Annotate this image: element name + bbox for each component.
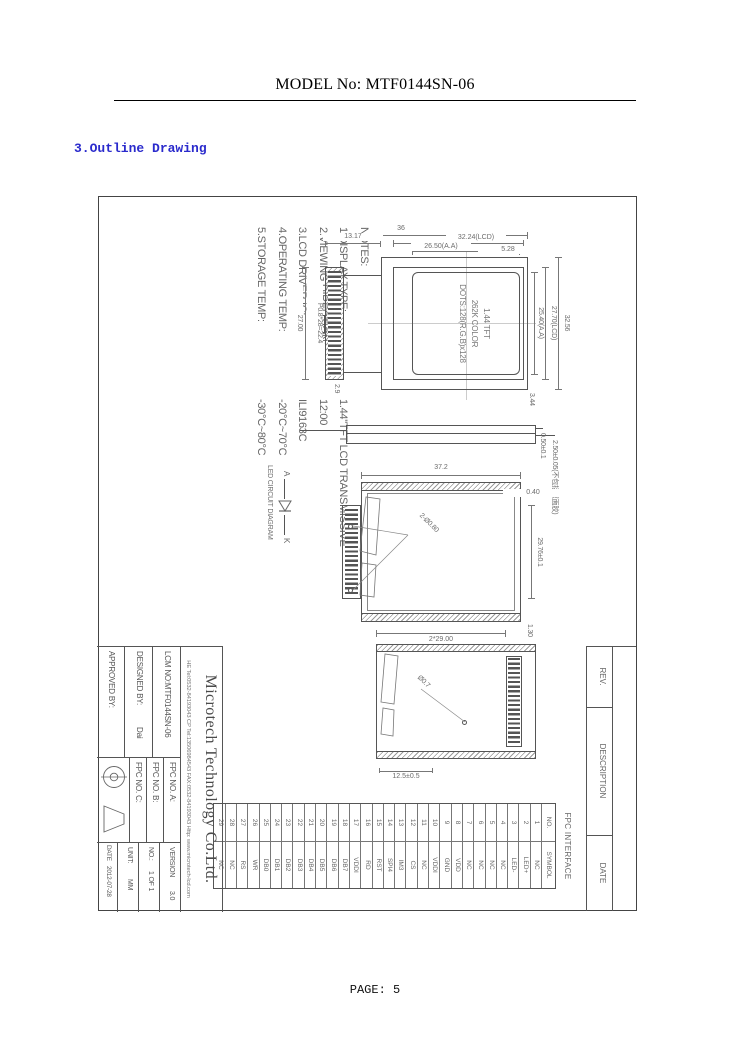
fpc-table-cell: 2: [519, 804, 529, 842]
unit-label: UNIT:: [126, 847, 133, 864]
fpc-table-cell: DB2: [282, 842, 292, 888]
fpc-table-row: 11NC: [418, 804, 429, 888]
fpc-table-cell: SPI4: [384, 842, 394, 888]
fpc-table-cell: IM3: [395, 842, 405, 888]
dim-lcd-thickness: 0.50±0.1: [538, 433, 546, 459]
description-header: DESCRIPTION: [598, 707, 607, 835]
fpc-table-cell: LED+: [519, 842, 529, 888]
fpc-table-cell: WR: [248, 842, 258, 888]
page-title: MODEL No: MTF0144SN-06: [0, 76, 750, 94]
titleblock-line-1: [180, 646, 181, 912]
fpc-table-cell: 25: [260, 804, 270, 842]
led-diagram-label: LED CIRCUIT DIAGRAM: [265, 465, 273, 540]
fpc-table-row: 2LED+: [519, 804, 530, 888]
note-item: 3.LCD DRIVER IC:ILI9163C: [292, 227, 313, 547]
dim-total-thickness: 2.50±0.05(不包括双面胶): [550, 440, 558, 514]
fpc-table-title: FPC INTERFACE: [563, 786, 572, 906]
dim-aa-width: 25.40(A.A): [536, 283, 544, 363]
date-label: DATE: [105, 845, 112, 861]
dim-fold-width: 12.5±0.5: [376, 773, 436, 781]
fpc-no-b: FPC NO. B:: [151, 762, 160, 802]
fpc-table-cell: 21: [305, 804, 315, 842]
fpc-table-cell: NC: [497, 842, 507, 888]
fpc-table-cell: 5: [486, 804, 496, 842]
fpc-table-cell: DB1: [271, 842, 281, 888]
dim-tape-edge: 1.30: [525, 624, 533, 637]
fpc-table-row: 9GND: [440, 804, 451, 888]
fpc-table-cell: GND: [440, 842, 450, 888]
fpc-table-cell: RST: [373, 842, 383, 888]
fpc-table-cell: 3: [508, 804, 518, 842]
fpc-table-row: 7NC: [463, 804, 474, 888]
version-label: VERSION: [168, 847, 175, 877]
led-wire-left: [284, 479, 285, 499]
fpc-table-row: 21DB4: [305, 804, 316, 888]
fpc-header-symbol: SYMBOL: [542, 842, 555, 888]
dim-connector-height: 2.9: [332, 384, 340, 393]
side-view-fpc-line: [300, 430, 346, 431]
dim-pin-pitch: P0.8*28=22.4: [315, 283, 323, 363]
led-wire-right: [284, 515, 285, 535]
fpc-table-row: 27RS: [237, 804, 248, 888]
version-value: 3.0: [168, 891, 175, 900]
titleblock-rowA-2: [124, 646, 125, 757]
dim-module-width: 32.56: [562, 283, 570, 363]
date-header: DATE: [598, 835, 607, 911]
screen-line-3: DOTS:128(R.G.B)x128: [456, 272, 468, 375]
fpc-table-cell: 20: [316, 804, 326, 842]
note-value: 12:00: [313, 399, 334, 425]
fpc-table-row: 15RST: [373, 804, 384, 888]
fpc-table-cell: RD: [361, 842, 371, 888]
fpc-table-row: 28NC: [226, 804, 237, 888]
dim-module-height: 36: [371, 225, 431, 233]
fpc-table-cell: NC: [463, 842, 473, 888]
dim-gap: 0.40: [503, 489, 563, 497]
note-label: 5.STORAGE TEMP:: [251, 227, 272, 399]
dim-line-fpc-w: [531, 505, 532, 599]
unit-value: MM: [126, 879, 133, 890]
fpc-table-cell: NC: [226, 842, 236, 888]
dim-line-tail: [325, 243, 381, 244]
dim-lcd-height: 32.24(LCD): [446, 234, 506, 242]
drawing-sheet-wrap: NOTES: 1.DISPLAY TYPE:1.44"TFT LCD TRANS…: [98, 196, 637, 911]
side-dim-leader-1: [536, 428, 543, 429]
dim-aa-height: 26.50(A.A): [411, 243, 471, 251]
fpc-table-row: 24DB1: [271, 804, 282, 888]
drawing-sheet: NOTES: 1.DISPLAY TYPE:1.44"TFT LCD TRANS…: [98, 196, 637, 911]
fpc-table-cell: 10: [429, 804, 439, 842]
company-name: Microtech Technology Co.Ltd.: [201, 646, 219, 912]
fpc-table-cell: VDDI: [429, 842, 439, 888]
fpc-table-cell: 26: [248, 804, 258, 842]
led-diode-icon: [278, 499, 292, 515]
fpc-table-row: 6NC: [474, 804, 485, 888]
titleblock-rowA-1: [152, 646, 153, 757]
fpc-table-cell: 13: [395, 804, 405, 842]
page-number: PAGE: 5: [0, 983, 750, 997]
fpc-table-row: 26WR: [248, 804, 259, 888]
rev-strip-bottom: [586, 646, 587, 911]
fpc-tail-edge-right: [344, 372, 381, 373]
titleblock-rowC-1: [159, 842, 160, 912]
note-value: -30°C~80°C: [251, 399, 272, 455]
fpc-table-row: 10VDDI: [429, 804, 440, 888]
fpc-table-cell: 15: [373, 804, 383, 842]
rev-header: REV.: [598, 646, 607, 707]
fpc-table-cell: 28: [226, 804, 236, 842]
dim-back-height: 37.2: [411, 464, 471, 472]
fpc-table-row: 12CS: [406, 804, 417, 888]
note-value: ILI9163C: [292, 399, 313, 441]
date-value: 2012-07-28: [105, 866, 112, 897]
titleblock-top-border: [222, 646, 223, 912]
fpc-table-cell: CS: [406, 842, 416, 888]
fpc-table-cell: NC: [486, 842, 496, 888]
titleblock-rowC-3: [117, 842, 118, 912]
fpc-table-cell: 22: [293, 804, 303, 842]
dim-connector-width: 27.00: [295, 283, 303, 363]
fpc-table-cell: 7: [463, 804, 473, 842]
fpc-table-cell: NC: [418, 842, 428, 888]
fpc-table-cell: 8: [452, 804, 462, 842]
dim-fpc-width: 29.76±0.1: [535, 512, 543, 592]
fpc-table-row: 8VDD: [452, 804, 463, 888]
fpc-table-cell: LED-: [508, 842, 518, 888]
dim-line-aa-w: [534, 272, 535, 375]
designer-name: Dai: [135, 727, 144, 738]
fpc-table-cell: 1: [531, 804, 541, 842]
fpc-table-row: 3LED-: [508, 804, 519, 888]
fpc-table-cell: RS: [237, 842, 247, 888]
fpc-no-a: FPC NO. A:: [168, 762, 177, 802]
fpc-table-row: 5NC: [486, 804, 497, 888]
titleblock-col-divider-1: [97, 757, 181, 758]
dim-edge-side: 5.28: [478, 246, 538, 254]
fpc-table-cell: DB3: [293, 842, 303, 888]
dim-edge-top: 3.44: [527, 393, 535, 406]
fpc-table-cell: 18: [339, 804, 349, 842]
dim-line-back-h: [361, 475, 521, 476]
fpc-table-cell: 14: [384, 804, 394, 842]
fpc-table-row: 20DB5: [316, 804, 327, 888]
fpc-table-row: 22DB3: [293, 804, 304, 888]
fpc-table-row: 1NC: [531, 804, 542, 888]
dim-line-module-w: [558, 257, 559, 390]
fpc-table-cell: NC: [474, 842, 484, 888]
fpc-table-cell: 17: [350, 804, 360, 842]
fpc-table-header: NO. SYMBOL: [542, 804, 555, 888]
screen-spec-text: 1.44 TFT 262K COLOR DOTS:128(R.G.B)x128: [456, 272, 492, 375]
fpc-table-cell: 11: [418, 804, 428, 842]
fpc-table-cell: VDD: [452, 842, 462, 888]
fpc-connector-pins: [328, 271, 341, 376]
fpc-no-c: FPC NO. C:: [134, 762, 143, 803]
note-value: -20°C~70°C: [272, 399, 293, 455]
approved-by-label: APPROVED BY:: [107, 651, 116, 708]
titleblock-col-divider-2: [97, 842, 181, 843]
fpc-table-cell: DB5: [316, 842, 326, 888]
screen-line-1: 1.44 TFT: [480, 272, 492, 375]
folded-view-details: [371, 644, 536, 784]
fpc-table-cell: DB4: [305, 842, 315, 888]
side-view-outline: [346, 425, 536, 444]
fpc-table-cell: DB7: [339, 842, 349, 888]
sheet-no-value: 1 OF 1: [147, 871, 154, 891]
led-anode-label: A: [282, 471, 290, 476]
note-label: 4.OPERATING TEMP:: [272, 227, 293, 399]
fpc-table-row: 13IM3: [395, 804, 406, 888]
dim-lcd-width: 27.70(LCD): [549, 283, 557, 363]
led-cathode-label: K: [282, 538, 290, 543]
dim-line-pad-span: [376, 633, 506, 634]
sheet-no-label: NO.:: [147, 847, 154, 861]
fpc-table-cell: DB0: [260, 842, 270, 888]
side-view-glass-line: [346, 433, 536, 434]
fpc-table-row: 4NC: [497, 804, 508, 888]
titleblock-rowB-2: [146, 757, 147, 842]
fpc-interface-table: NO. SYMBOL 1NC2LED+3LED-4NC5NC6NC7NC8VDD…: [213, 803, 556, 889]
rev-strip-divider: [612, 646, 613, 911]
fpc-table-row: 14SPI4: [384, 804, 395, 888]
dim-pad-span: 2*29.00: [411, 636, 471, 644]
dim-tail-length: 13.17: [323, 233, 383, 241]
back-view-details: [336, 477, 526, 647]
fpc-table-rows: 1NC2LED+3LED-4NC5NC6NC7NC8VDD9GND10VDDI1…: [214, 804, 542, 888]
dim-line-fold-w: [379, 771, 433, 772]
fpc-table-cell: 24: [271, 804, 281, 842]
titleblock-rowB-3: [129, 757, 130, 842]
dim-line-lcd-w: [545, 267, 546, 380]
fpc-table-cell: 9: [440, 804, 450, 842]
company-contact: HE Tel:0532-84193043 CP Tel:13506984543 …: [185, 646, 191, 912]
titleblock-rowC-2: [138, 842, 139, 912]
fpc-table-cell: 6: [474, 804, 484, 842]
fpc-table-cell: 12: [406, 804, 416, 842]
fpc-table-row: 19DB6: [327, 804, 338, 888]
designed-by-label: DESIGNED BY:: [135, 651, 144, 705]
fpc-table-row: 18DB7: [339, 804, 350, 888]
fpc-table-row: 23DB2: [282, 804, 293, 888]
fpc-table-cell: NC: [531, 842, 541, 888]
projection-symbols: [100, 762, 128, 838]
lcm-no: LCM NO:MTF0144SN-06: [163, 651, 172, 737]
header-rule: [114, 100, 636, 101]
fpc-table-cell: 19: [327, 804, 337, 842]
fpc-table-row: 17VDDI: [350, 804, 361, 888]
fpc-table-cell: DB6: [327, 842, 337, 888]
section-title: 3.Outline Drawing: [74, 141, 207, 156]
fpc-table-cell: 27: [237, 804, 247, 842]
dim-line-conn-w: [305, 267, 306, 380]
fpc-table-cell: 23: [282, 804, 292, 842]
fpc-header-no: NO.: [542, 804, 555, 842]
fpc-table-cell: 16: [361, 804, 371, 842]
fpc-table-row: 25DB0: [260, 804, 271, 888]
fpc-tail-edge-left: [344, 275, 381, 276]
screen-line-2: 262K COLOR: [468, 272, 480, 375]
titleblock-rowB-1: [163, 757, 164, 842]
fpc-table-cell: 4: [497, 804, 507, 842]
fpc-table-row: 16RD: [361, 804, 372, 888]
fpc-table-cell: VDDI: [350, 842, 360, 888]
